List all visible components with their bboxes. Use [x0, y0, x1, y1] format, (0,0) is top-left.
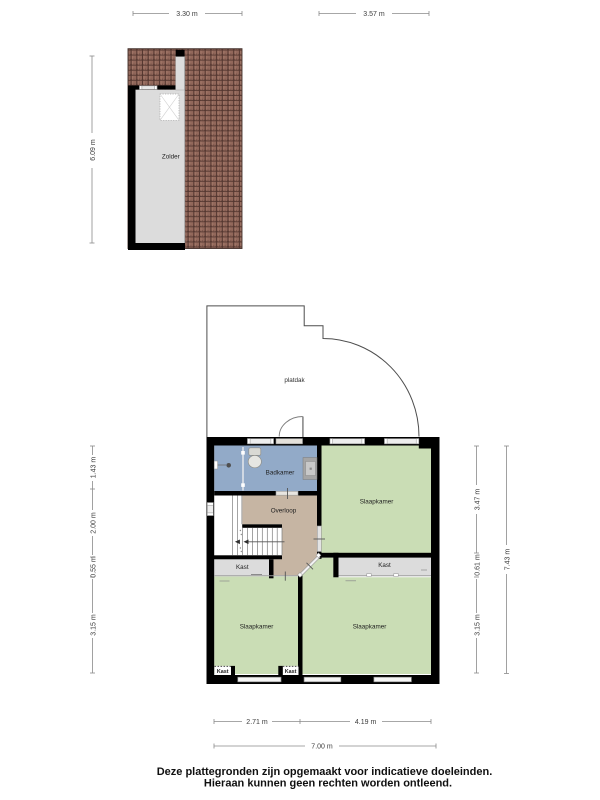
svg-text:Hieraan kunnen geen rechten wo: Hieraan kunnen geen rechten worden ontle… [204, 778, 452, 790]
svg-text:Kast: Kast [217, 669, 229, 675]
svg-text:1.43 m: 1.43 m [91, 457, 98, 479]
svg-text:Deze plattegronden zijn opgema: Deze plattegronden zijn opgemaakt voor i… [157, 766, 493, 778]
svg-text:2.71 m: 2.71 m [246, 719, 268, 726]
svg-text:7.00 m: 7.00 m [311, 744, 333, 751]
svg-text:3.57 m: 3.57 m [363, 11, 385, 18]
svg-text:3.15 m: 3.15 m [91, 614, 98, 636]
svg-text:7.43 m: 7.43 m [505, 549, 512, 571]
svg-text:2.00 m: 2.00 m [91, 512, 98, 534]
svg-text:Zolder: Zolder [162, 153, 180, 160]
svg-text:3.15 m: 3.15 m [475, 614, 482, 636]
svg-text:4.19 m: 4.19 m [355, 719, 377, 726]
svg-text:Slaapkamer: Slaapkamer [353, 623, 387, 630]
svg-text:3.30 m: 3.30 m [176, 11, 198, 18]
svg-text:Slaapkamer: Slaapkamer [240, 623, 274, 630]
svg-text:Badkamer: Badkamer [266, 470, 295, 477]
svg-text:Slaapkamer: Slaapkamer [360, 498, 394, 505]
svg-text:0.55 m: 0.55 m [91, 556, 98, 578]
svg-text:3.47 m: 3.47 m [475, 489, 482, 511]
svg-text:platdak: platdak [284, 377, 305, 384]
svg-text:0.61 m: 0.61 m [475, 554, 482, 576]
svg-text:Kast: Kast [378, 562, 391, 569]
svg-text:Overloop: Overloop [271, 508, 297, 515]
svg-text:6.09 m: 6.09 m [90, 139, 97, 161]
svg-text:Kast: Kast [236, 564, 249, 571]
svg-text:Kast: Kast [285, 669, 297, 675]
